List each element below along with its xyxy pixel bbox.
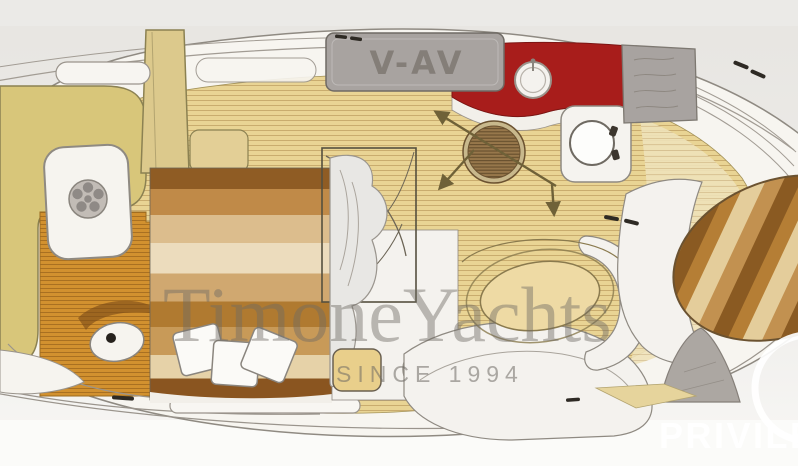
side-deck-bar bbox=[196, 58, 316, 82]
helm-seat-dot bbox=[106, 333, 116, 343]
top-band bbox=[0, 0, 798, 26]
stern-bench bbox=[56, 62, 150, 84]
bow-cabinet bbox=[622, 45, 697, 123]
targa-arch bbox=[141, 30, 189, 173]
yacht-floorplan: V-AV TimoneYachts SINCE 19 bbox=[0, 0, 798, 466]
wardrobe-unit bbox=[190, 130, 248, 172]
watermark-brand: TimoneYachts bbox=[163, 271, 612, 358]
appliance-unit bbox=[561, 106, 631, 182]
watermark-tagline: SINCE 1994 bbox=[336, 361, 524, 387]
shower-drain bbox=[69, 180, 107, 218]
footer-brand-text: PRIVILE bbox=[659, 415, 798, 456]
hatch-marking: V-AV bbox=[369, 44, 464, 82]
floorplan-canvas: V-AV TimoneYachts SINCE 19 bbox=[0, 0, 798, 466]
